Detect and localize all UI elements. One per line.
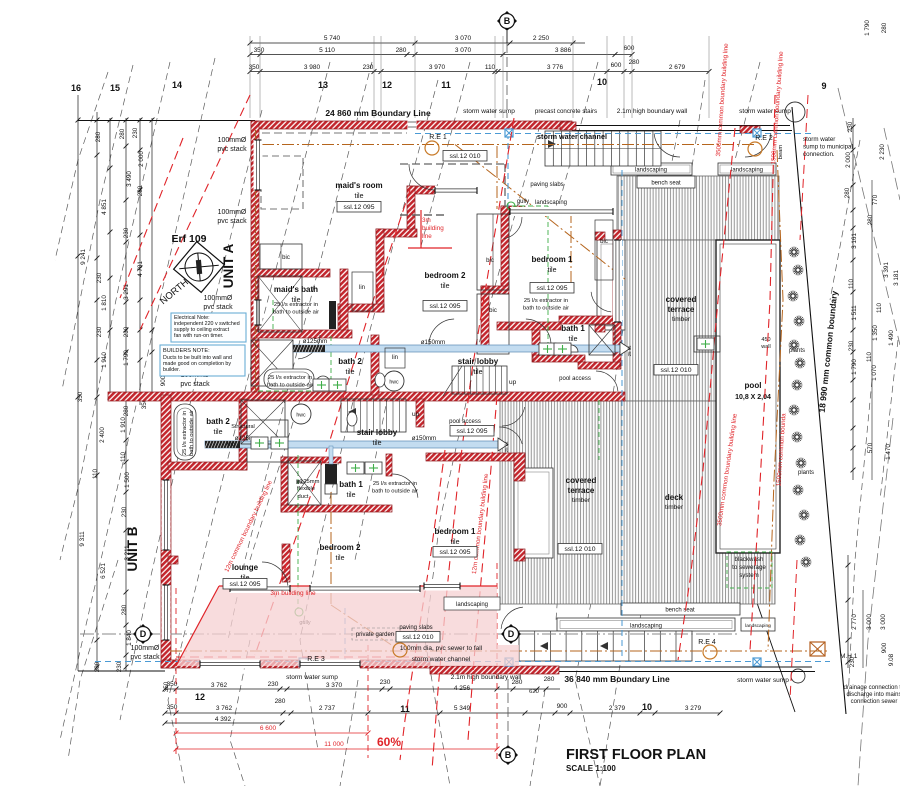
svg-text:280: 280 xyxy=(275,698,286,705)
svg-text:900: 900 xyxy=(557,703,568,710)
svg-text:1 470: 1 470 xyxy=(885,444,892,460)
svg-text:tile: tile xyxy=(336,555,345,562)
svg-text:tile: tile xyxy=(569,336,578,343)
svg-text:R.E 3: R.E 3 xyxy=(307,656,325,663)
svg-text:3 181: 3 181 xyxy=(893,270,900,286)
svg-text:SCALE 1:100: SCALE 1:100 xyxy=(566,764,616,773)
svg-text:bath 2: bath 2 xyxy=(338,357,362,366)
svg-text:110: 110 xyxy=(876,302,883,313)
svg-text:terrace: terrace xyxy=(668,305,695,314)
svg-text:14: 14 xyxy=(172,80,182,90)
svg-text:230: 230 xyxy=(268,681,279,688)
svg-text:100mm dia, pvc sewer to fall: 100mm dia, pvc sewer to fall xyxy=(400,645,483,652)
svg-text:1 790: 1 790 xyxy=(851,359,858,375)
svg-text:3 070: 3 070 xyxy=(455,47,472,54)
svg-text:4 392: 4 392 xyxy=(215,716,232,723)
svg-text:3 370: 3 370 xyxy=(326,682,343,689)
svg-text:770: 770 xyxy=(872,194,879,205)
svg-text:3 000: 3 000 xyxy=(880,614,887,630)
svg-text:3 000: 3 000 xyxy=(866,614,873,630)
svg-text:10: 10 xyxy=(642,702,652,712)
svg-text:duct: duct xyxy=(298,494,309,500)
svg-text:beam: beam xyxy=(778,145,784,160)
svg-text:precast concrete stairs: precast concrete stairs xyxy=(535,108,597,115)
svg-text:bic: bic xyxy=(489,308,497,314)
svg-text:R.E 2: R.E 2 xyxy=(755,135,773,142)
svg-text:2.1m high boundary wall: 2.1m high boundary wall xyxy=(451,674,522,681)
svg-text:12: 12 xyxy=(382,80,392,90)
svg-text:11: 11 xyxy=(441,80,451,90)
svg-text:landscaping: landscaping xyxy=(630,624,662,630)
svg-text:9 241: 9 241 xyxy=(80,249,87,265)
svg-text:ø125mm: ø125mm xyxy=(297,479,320,485)
svg-text:B: B xyxy=(505,750,512,760)
svg-text:3 391: 3 391 xyxy=(883,262,890,278)
svg-text:9 311: 9 311 xyxy=(79,531,86,547)
svg-text:up: up xyxy=(509,379,517,386)
svg-text:drainage connection to: drainage connection to xyxy=(844,685,900,691)
svg-text:tile: tile xyxy=(451,539,460,546)
svg-text:2 230: 2 230 xyxy=(879,144,886,160)
svg-text:2.1m high boundary wall: 2.1m high boundary wall xyxy=(617,108,688,115)
svg-text:wall: wall xyxy=(760,344,770,350)
svg-text:230: 230 xyxy=(847,121,854,132)
svg-text:paving slabs: paving slabs xyxy=(530,182,563,188)
svg-text:bath 1: bath 1 xyxy=(339,480,363,489)
svg-text:1 070: 1 070 xyxy=(871,365,878,381)
svg-text:230: 230 xyxy=(380,679,391,686)
svg-text:100mmØ: 100mmØ xyxy=(218,209,247,216)
svg-text:pvc stack: pvc stack xyxy=(203,304,233,311)
svg-text:9.08: 9.08 xyxy=(888,653,895,666)
svg-text:sump to municipal: sump to municipal xyxy=(803,144,853,151)
svg-text:bedroom 1: bedroom 1 xyxy=(532,255,573,264)
svg-text:stair lobby: stair lobby xyxy=(458,357,499,366)
svg-text:R.E 1: R.E 1 xyxy=(429,134,447,141)
svg-text:hwc: hwc xyxy=(389,380,399,386)
svg-text:timber: timber xyxy=(672,316,691,323)
svg-text:900: 900 xyxy=(160,375,167,386)
svg-text:pvc stack: pvc stack xyxy=(180,381,210,388)
svg-text:pool access: pool access xyxy=(449,419,481,425)
svg-text:pool access: pool access xyxy=(559,376,591,382)
svg-text:hwc: hwc xyxy=(296,413,306,419)
svg-text:D: D xyxy=(140,629,147,639)
svg-text:ssl.12 095: ssl.12 095 xyxy=(537,285,568,292)
svg-text:6 521: 6 521 xyxy=(100,563,107,579)
svg-text:ssl.12 095: ssl.12 095 xyxy=(230,581,261,588)
svg-text:bedroom 2: bedroom 2 xyxy=(320,543,361,552)
svg-text:10,8 X 2,04: 10,8 X 2,04 xyxy=(735,394,771,401)
svg-text:plants: plants xyxy=(798,470,814,476)
svg-text:230: 230 xyxy=(96,326,103,337)
svg-text:BUILDERS NOTE:: BUILDERS NOTE: xyxy=(163,348,210,354)
svg-text:tile: tile xyxy=(355,193,364,200)
svg-text:3m building line: 3m building line xyxy=(270,590,316,597)
svg-text:FIRST FLOOR PLAN: FIRST FLOOR PLAN xyxy=(566,747,706,763)
svg-text:connection.: connection. xyxy=(803,151,835,158)
svg-text:25 l/s extractor in: 25 l/s extractor in xyxy=(524,298,568,304)
svg-text:25 l/s extractor in: 25 l/s extractor in xyxy=(373,481,417,487)
svg-text:storm water: storm water xyxy=(803,136,835,143)
svg-text:2 000: 2 000 xyxy=(138,151,145,167)
svg-text:2 250: 2 250 xyxy=(533,35,550,42)
svg-text:covered: covered xyxy=(666,295,697,304)
svg-text:storm water sump: storm water sump xyxy=(463,108,515,115)
svg-text:230: 230 xyxy=(121,506,128,517)
svg-text:1 511: 1 511 xyxy=(851,305,858,321)
svg-text:building: building xyxy=(422,225,444,232)
svg-text:tile: tile xyxy=(373,440,382,447)
svg-text:pool: pool xyxy=(745,381,762,390)
svg-text:900: 900 xyxy=(881,642,888,653)
svg-text:ssl.12 095: ssl.12 095 xyxy=(430,303,461,310)
svg-text:350: 350 xyxy=(77,391,84,402)
svg-text:1 910: 1 910 xyxy=(120,417,127,433)
svg-text:280: 280 xyxy=(867,214,874,225)
svg-text:5 110: 5 110 xyxy=(319,47,335,54)
svg-text:landscaping: landscaping xyxy=(535,200,567,206)
svg-text:fan with run-on timer.: fan with run-on timer. xyxy=(174,333,223,339)
svg-text:11 000: 11 000 xyxy=(324,741,344,748)
svg-text:3 886: 3 886 xyxy=(555,47,572,54)
svg-text:1 350: 1 350 xyxy=(872,325,879,341)
svg-text:1 790: 1 790 xyxy=(123,350,130,366)
svg-text:280: 280 xyxy=(123,405,130,416)
svg-text:3 070: 3 070 xyxy=(455,35,472,42)
svg-text:stair lobby: stair lobby xyxy=(357,428,398,437)
svg-text:230: 230 xyxy=(132,127,139,138)
svg-text:pvc stack: pvc stack xyxy=(130,654,160,661)
svg-text:bath to outside air: bath to outside air xyxy=(273,310,319,316)
svg-text:36 840 mm Boundary Line: 36 840 mm Boundary Line xyxy=(564,674,670,684)
svg-text:paving slabs: paving slabs xyxy=(399,625,432,631)
svg-text:280: 280 xyxy=(629,59,640,66)
svg-text:ssl.12 095: ssl.12 095 xyxy=(440,549,471,556)
svg-text:private garden: private garden xyxy=(356,632,394,638)
svg-text:15: 15 xyxy=(110,83,120,93)
svg-text:600: 600 xyxy=(624,45,635,52)
svg-text:3 279: 3 279 xyxy=(685,705,702,712)
svg-text:24 860 mm Boundary Line: 24 860 mm Boundary Line xyxy=(325,108,431,118)
svg-text:system: system xyxy=(739,572,759,579)
svg-text:3 762: 3 762 xyxy=(211,682,228,689)
svg-text:to sewerage: to sewerage xyxy=(732,564,766,571)
svg-text:230: 230 xyxy=(848,340,855,351)
svg-text:280: 280 xyxy=(137,185,144,196)
svg-text:13: 13 xyxy=(318,80,328,90)
svg-text:lin: lin xyxy=(392,355,398,361)
svg-text:storm water sump: storm water sump xyxy=(737,677,789,684)
svg-text:110: 110 xyxy=(866,351,873,362)
svg-text:ssl.12 010: ssl.12 010 xyxy=(661,367,692,374)
svg-text:bic: bic xyxy=(282,255,290,261)
svg-text:350: 350 xyxy=(254,47,265,54)
svg-text:D: D xyxy=(508,629,515,639)
svg-text:25 l/s extractor in: 25 l/s extractor in xyxy=(274,302,318,308)
svg-text:tile: tile xyxy=(347,492,356,499)
svg-text:blackwash: blackwash xyxy=(735,556,764,563)
svg-text:tile: tile xyxy=(548,267,557,274)
svg-text:110: 110 xyxy=(92,468,99,479)
svg-text:ssl.12 095: ssl.12 095 xyxy=(344,204,375,211)
svg-text:timber: timber xyxy=(572,497,591,504)
svg-text:M.H 1: M.H 1 xyxy=(840,653,858,660)
svg-text:bic: bic xyxy=(600,239,608,245)
svg-text:12: 12 xyxy=(195,692,205,702)
svg-text:bath to outside air: bath to outside air xyxy=(189,410,195,456)
svg-text:tile: tile xyxy=(474,369,483,376)
svg-text:1 790: 1 790 xyxy=(864,20,871,36)
svg-text:110: 110 xyxy=(485,64,496,71)
svg-text:bath to outside air: bath to outside air xyxy=(372,489,418,495)
svg-text:bedroom 2: bedroom 2 xyxy=(425,271,466,280)
svg-text:discharge into mains: discharge into mains xyxy=(846,692,900,698)
svg-text:2 737: 2 737 xyxy=(319,705,336,712)
svg-text:2 679: 2 679 xyxy=(669,64,686,71)
svg-text:ssl.12 095: ssl.12 095 xyxy=(457,428,488,435)
svg-text:2 400: 2 400 xyxy=(99,427,106,443)
svg-text:3 161: 3 161 xyxy=(851,233,858,249)
svg-text:230: 230 xyxy=(123,326,130,337)
svg-text:25 l/s extractor in: 25 l/s extractor in xyxy=(268,375,312,381)
svg-text:bench seat: bench seat xyxy=(665,608,695,614)
svg-text:3m: 3m xyxy=(422,217,431,224)
svg-text:2 000: 2 000 xyxy=(845,152,852,168)
svg-text:bedroom 1: bedroom 1 xyxy=(435,527,476,536)
svg-text:builder.: builder. xyxy=(163,367,180,373)
svg-text:570: 570 xyxy=(867,442,874,453)
svg-text:landscaping: landscaping xyxy=(745,623,771,629)
svg-text:connection sewer: connection sewer xyxy=(851,699,898,705)
svg-text:pvc stack: pvc stack xyxy=(217,218,247,225)
svg-text:Erf 109: Erf 109 xyxy=(171,233,206,245)
svg-text:280: 280 xyxy=(844,187,851,198)
svg-text:landscaping: landscaping xyxy=(731,168,763,174)
svg-text:620: 620 xyxy=(529,689,539,695)
svg-text:3 970: 3 970 xyxy=(429,64,446,71)
svg-text:lin: lin xyxy=(359,285,365,291)
svg-text:UNIT B: UNIT B xyxy=(125,526,140,571)
svg-text:5 349: 5 349 xyxy=(454,705,471,712)
svg-text:2 379: 2 379 xyxy=(609,705,626,712)
svg-text:3 980: 3 980 xyxy=(304,64,321,71)
svg-text:1 810: 1 810 xyxy=(101,295,108,311)
svg-text:plants: plants xyxy=(789,348,805,354)
svg-text:6 600: 6 600 xyxy=(260,725,277,732)
svg-text:ø150mm: ø150mm xyxy=(412,435,436,442)
svg-text:280: 280 xyxy=(121,604,128,615)
svg-text:1 910: 1 910 xyxy=(101,352,108,368)
svg-text:bath to outside air: bath to outside air xyxy=(523,306,569,312)
svg-text:3 762: 3 762 xyxy=(216,705,233,712)
svg-text:280: 280 xyxy=(119,128,126,139)
svg-text:covered: covered xyxy=(566,476,597,485)
svg-text:storm water sump: storm water sump xyxy=(286,674,338,681)
svg-text:pvc stack: pvc stack xyxy=(217,146,247,153)
svg-text:ø150mm: ø150mm xyxy=(421,339,445,346)
svg-text:230: 230 xyxy=(123,227,130,238)
svg-text:lounge: lounge xyxy=(232,563,259,572)
svg-text:maid's bath: maid's bath xyxy=(274,285,318,294)
svg-text:bench seat: bench seat xyxy=(651,181,681,187)
svg-text:100mmØ: 100mmØ xyxy=(204,295,233,302)
svg-text:maid's room: maid's room xyxy=(335,181,382,190)
svg-text:25 l/s extractor in: 25 l/s extractor in xyxy=(182,411,188,455)
svg-text:110: 110 xyxy=(848,278,855,289)
svg-text:B: B xyxy=(504,16,511,26)
svg-text:230: 230 xyxy=(363,64,374,71)
svg-text:line: line xyxy=(422,233,432,240)
svg-text:up: up xyxy=(412,411,420,418)
svg-text:11: 11 xyxy=(400,704,410,714)
svg-text:280: 280 xyxy=(396,47,407,54)
svg-text:60%: 60% xyxy=(377,735,401,749)
svg-text:1 840: 1 840 xyxy=(126,630,133,646)
svg-text:280: 280 xyxy=(544,676,555,683)
svg-text:Structural: Structural xyxy=(231,424,255,430)
svg-text:ssl.12 010: ssl.12 010 xyxy=(403,634,434,641)
svg-text:bath 2: bath 2 xyxy=(206,417,230,426)
svg-text:100mmØ: 100mmØ xyxy=(218,137,247,144)
svg-text:bath 1: bath 1 xyxy=(561,324,585,333)
svg-text:10: 10 xyxy=(597,77,607,87)
svg-text:timber: timber xyxy=(665,504,684,511)
svg-text:100mmØ: 100mmØ xyxy=(131,645,160,652)
svg-text:4 781: 4 781 xyxy=(137,261,144,277)
svg-text:tile: tile xyxy=(441,283,450,290)
svg-text:flexible: flexible xyxy=(297,486,315,492)
svg-text:450: 450 xyxy=(761,337,770,343)
svg-text:terrace: terrace xyxy=(568,486,595,495)
svg-text:350: 350 xyxy=(249,64,260,71)
svg-text:3 291: 3 291 xyxy=(123,284,130,300)
svg-text:4 256: 4 256 xyxy=(454,685,471,692)
svg-text:4 851: 4 851 xyxy=(101,199,108,215)
svg-text:25 l/s: 25 l/s xyxy=(504,441,509,453)
svg-text:bic: bic xyxy=(486,258,494,264)
svg-text:tile: tile xyxy=(214,429,223,436)
svg-text:ssl.12 010: ssl.12 010 xyxy=(565,546,596,553)
svg-text:230: 230 xyxy=(96,272,103,283)
svg-text:16: 16 xyxy=(71,83,81,93)
svg-text:ø125mm: ø125mm xyxy=(303,338,327,345)
svg-text:9: 9 xyxy=(821,81,826,91)
svg-text:110: 110 xyxy=(120,451,127,462)
svg-text:R.E 4: R.E 4 xyxy=(698,639,716,646)
svg-text:ssl.12 010: ssl.12 010 xyxy=(450,153,481,160)
svg-text:2 770: 2 770 xyxy=(851,614,858,630)
svg-text:600: 600 xyxy=(611,62,622,69)
svg-text:25 l/s: 25 l/s xyxy=(627,345,632,357)
svg-text:landscaping: landscaping xyxy=(635,168,667,174)
svg-text:3 490: 3 490 xyxy=(126,171,133,187)
svg-text:3 776: 3 776 xyxy=(547,64,564,71)
svg-text:deck: deck xyxy=(665,493,684,502)
svg-text:280: 280 xyxy=(881,22,888,33)
svg-text:bic: bic xyxy=(227,442,235,448)
svg-text:bath to outside air: bath to outside air xyxy=(267,383,313,389)
svg-text:tile: tile xyxy=(346,369,355,376)
svg-text:landscaping: landscaping xyxy=(456,602,488,608)
svg-text:1 500: 1 500 xyxy=(124,472,131,488)
svg-text:280: 280 xyxy=(95,131,102,142)
svg-text:storm water sump: storm water sump xyxy=(739,108,791,115)
svg-text:storm water channel: storm water channel xyxy=(412,656,471,663)
svg-text:gully: gully xyxy=(517,199,529,205)
svg-text:5 740: 5 740 xyxy=(324,35,341,42)
svg-text:1 490: 1 490 xyxy=(888,330,895,346)
